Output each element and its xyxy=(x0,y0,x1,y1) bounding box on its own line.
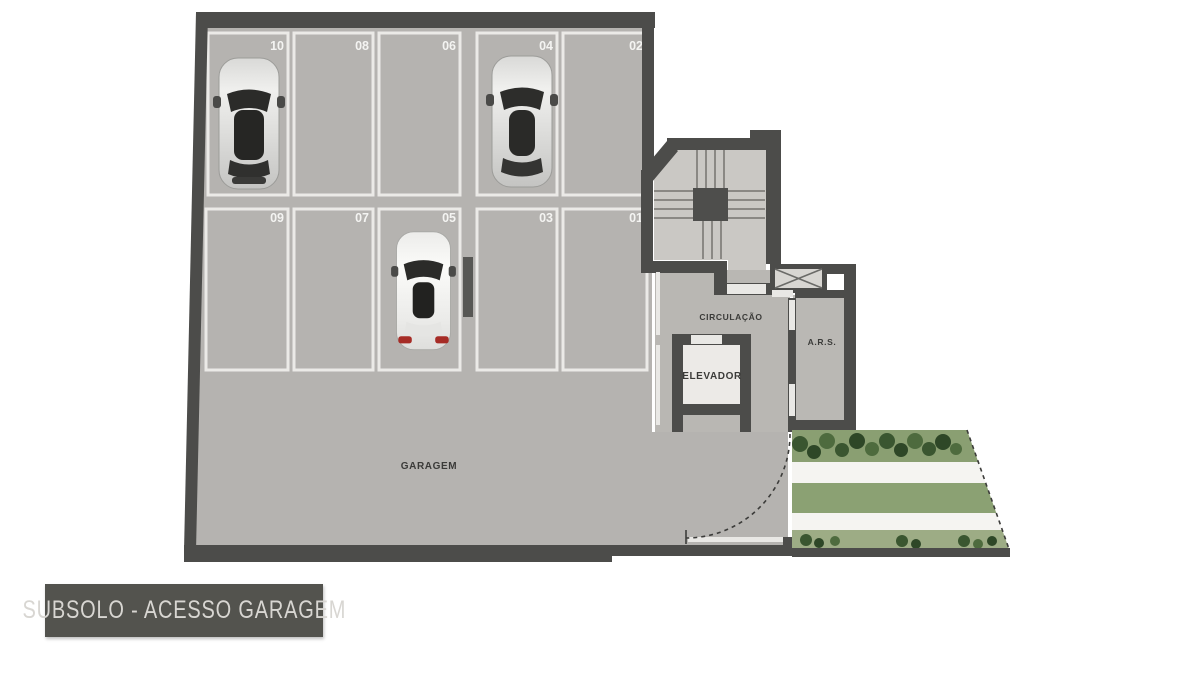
space-number-04: 04 xyxy=(539,39,553,53)
grass-strip xyxy=(792,483,1012,513)
space-number-01: 01 xyxy=(629,211,643,225)
car-space-10 xyxy=(213,58,285,189)
wall-elevator-left xyxy=(672,334,683,432)
floor-plan-page: 10 08 06 04 02 09 07 05 03 01 xyxy=(0,0,1200,675)
wall-ars-top xyxy=(795,290,856,298)
wall-garage-right xyxy=(642,28,654,172)
circulation-label: CIRCULAÇÃO xyxy=(699,312,762,322)
wall-stair-right xyxy=(766,143,781,264)
vent-shaft xyxy=(775,269,822,288)
space-number-06: 06 xyxy=(442,39,456,53)
elevator-label: ELEVADOR xyxy=(682,371,742,382)
wall-elevator-right xyxy=(740,334,751,432)
wall-gate-post xyxy=(783,537,793,548)
landscaped-driveway xyxy=(792,430,1012,557)
ars-floor xyxy=(793,295,845,422)
garage-label: GARAGEM xyxy=(401,461,457,472)
walkway-strip-2 xyxy=(792,513,1012,530)
plan-title-box: SUBSOLO - ACESSO GARAGEM xyxy=(45,584,323,637)
floor-plan-canvas: 10 08 06 04 02 09 07 05 03 01 xyxy=(0,0,1200,675)
wall-bottom-right xyxy=(612,545,792,556)
space-number-02: 02 xyxy=(629,39,643,53)
space-number-10: 10 xyxy=(270,39,284,53)
wall-elevator-bottom xyxy=(683,404,740,415)
structural-pillar xyxy=(463,257,473,317)
space-number-05: 05 xyxy=(442,211,456,225)
space-number-08: 08 xyxy=(355,39,369,53)
space-number-03: 03 xyxy=(539,211,553,225)
car-space-05 xyxy=(391,232,456,350)
ars-label: A.R.S. xyxy=(808,337,837,347)
space-number-07: 07 xyxy=(355,211,369,225)
wall-wing-right xyxy=(844,264,856,432)
plan-title: SUBSOLO - ACESSO GARAGEM xyxy=(22,596,346,625)
space-number-09: 09 xyxy=(270,211,284,225)
driveway-bottom-wall xyxy=(792,548,1010,557)
stair-landing xyxy=(693,188,728,221)
wall-bottom-left xyxy=(184,545,612,562)
wall-stair-left xyxy=(641,170,653,273)
car-space-04 xyxy=(486,56,558,187)
wall-top xyxy=(196,12,655,28)
walkway-strip-1 xyxy=(792,462,1012,483)
